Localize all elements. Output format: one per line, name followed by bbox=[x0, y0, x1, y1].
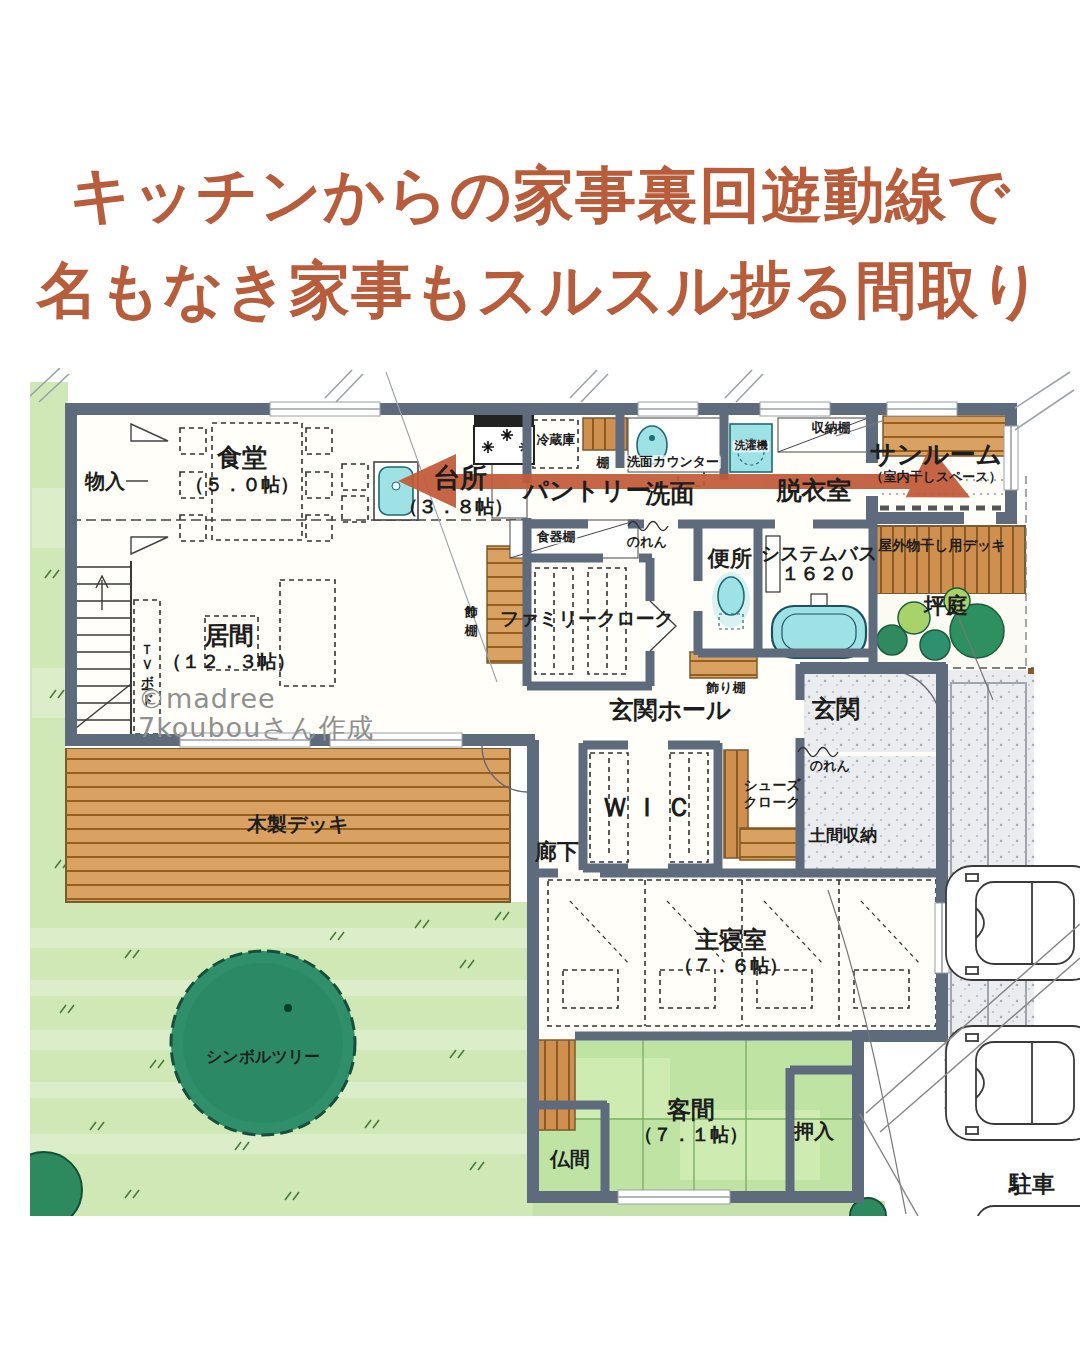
label-master-bedroom: 主寝室 bbox=[695, 928, 767, 953]
label-living: 居間 bbox=[204, 623, 254, 649]
label-dish-cabinet: 食器棚 bbox=[535, 530, 578, 544]
label-system-bath: システムバス bbox=[761, 544, 878, 564]
label-wic: ＷＩＣ bbox=[602, 794, 698, 821]
label-shoe-cloak-2: クローク bbox=[744, 795, 801, 810]
label-washing-machine: 洗濯機 bbox=[733, 440, 770, 452]
label-storage-closet: 物入 bbox=[85, 471, 125, 492]
label-dressing-room: 脱衣室 bbox=[777, 478, 852, 504]
page-title: キッチンからの家事裏回遊動線で 名もなき家事もスルスル捗る間取り bbox=[0, 148, 1080, 337]
label-wood-deck: 木製デッキ bbox=[247, 814, 348, 835]
label-sunroom: サンルーム bbox=[870, 441, 1002, 468]
title-line-1: キッチンからの家事裏回遊動線で bbox=[0, 148, 1080, 243]
label-guest-room: 客間 bbox=[667, 1098, 715, 1123]
label-dining: 食堂 bbox=[217, 445, 267, 471]
label-storage-shelf: 収納棚 bbox=[812, 421, 851, 435]
label-refrigerator: 冷蔵庫 bbox=[537, 433, 576, 447]
label-doma-storage: 土間収納 bbox=[809, 827, 877, 845]
label-parking: 駐車 bbox=[1009, 1172, 1055, 1196]
label-sunroom-note: （室内干しスペース） bbox=[870, 470, 1001, 484]
label-display-shelf-2: 飾り棚 bbox=[706, 681, 745, 695]
room-labels: 物入 食堂 （５．０帖） 台所 （３．８帖） 冷蔵庫 棚 パントリー 洗面カウン… bbox=[30, 368, 1080, 1216]
label-shelf: 棚 bbox=[597, 456, 610, 470]
watermark-line-2: 7koubouさん作成 bbox=[138, 714, 375, 742]
label-butsuma: 仏間 bbox=[550, 1149, 590, 1170]
label-washroom: 洗面 bbox=[645, 481, 695, 507]
label-corridor: 廊下 bbox=[535, 840, 579, 863]
label-master-bedroom-size: （７．６帖） bbox=[674, 956, 788, 976]
label-dining-size: （５．０帖） bbox=[185, 475, 299, 495]
page: キッチンからの家事裏回遊動線で 名もなき家事もスルスル捗る間取り bbox=[0, 0, 1080, 1350]
label-noren-1: のれん bbox=[627, 535, 667, 549]
label-kitchen: 台所 bbox=[433, 464, 487, 492]
label-wash-counter: 洗面カウンター bbox=[625, 455, 721, 469]
label-display-shelf-1: 飾り棚 bbox=[464, 595, 478, 616]
label-kitchen-size: （３．８帖） bbox=[399, 497, 513, 517]
title-line-2: 名もなき家事もスルスル捗る間取り bbox=[0, 243, 1080, 338]
label-symbol-tree: シンボルツリー bbox=[206, 1049, 320, 1066]
label-guest-room-size: （７．１帖） bbox=[634, 1125, 748, 1145]
label-living-size: （１２．３帖） bbox=[163, 652, 296, 672]
label-entrance-hall: 玄関ホール bbox=[609, 698, 730, 723]
label-family-cloak: ファミリークローク bbox=[500, 609, 674, 629]
watermark-line-1: ©madree bbox=[138, 685, 276, 713]
label-entrance: 玄関 bbox=[812, 697, 860, 722]
label-oshiire: 押入 bbox=[794, 1121, 834, 1142]
floor-plan: 物入 食堂 （５．０帖） 台所 （３．８帖） 冷蔵庫 棚 パントリー 洗面カウン… bbox=[30, 368, 1080, 1216]
label-outdoor-drying-deck: 屋外物干し用デッキ bbox=[878, 538, 1005, 553]
label-noren-2: のれん bbox=[810, 759, 850, 773]
label-shoe-cloak-1: シューズ bbox=[744, 778, 801, 793]
label-toilet: 便所 bbox=[708, 547, 752, 570]
label-pantry: パントリー bbox=[523, 478, 650, 504]
label-bath-size: １６２０ bbox=[781, 564, 857, 584]
label-courtyard: 坪庭 bbox=[924, 594, 968, 617]
